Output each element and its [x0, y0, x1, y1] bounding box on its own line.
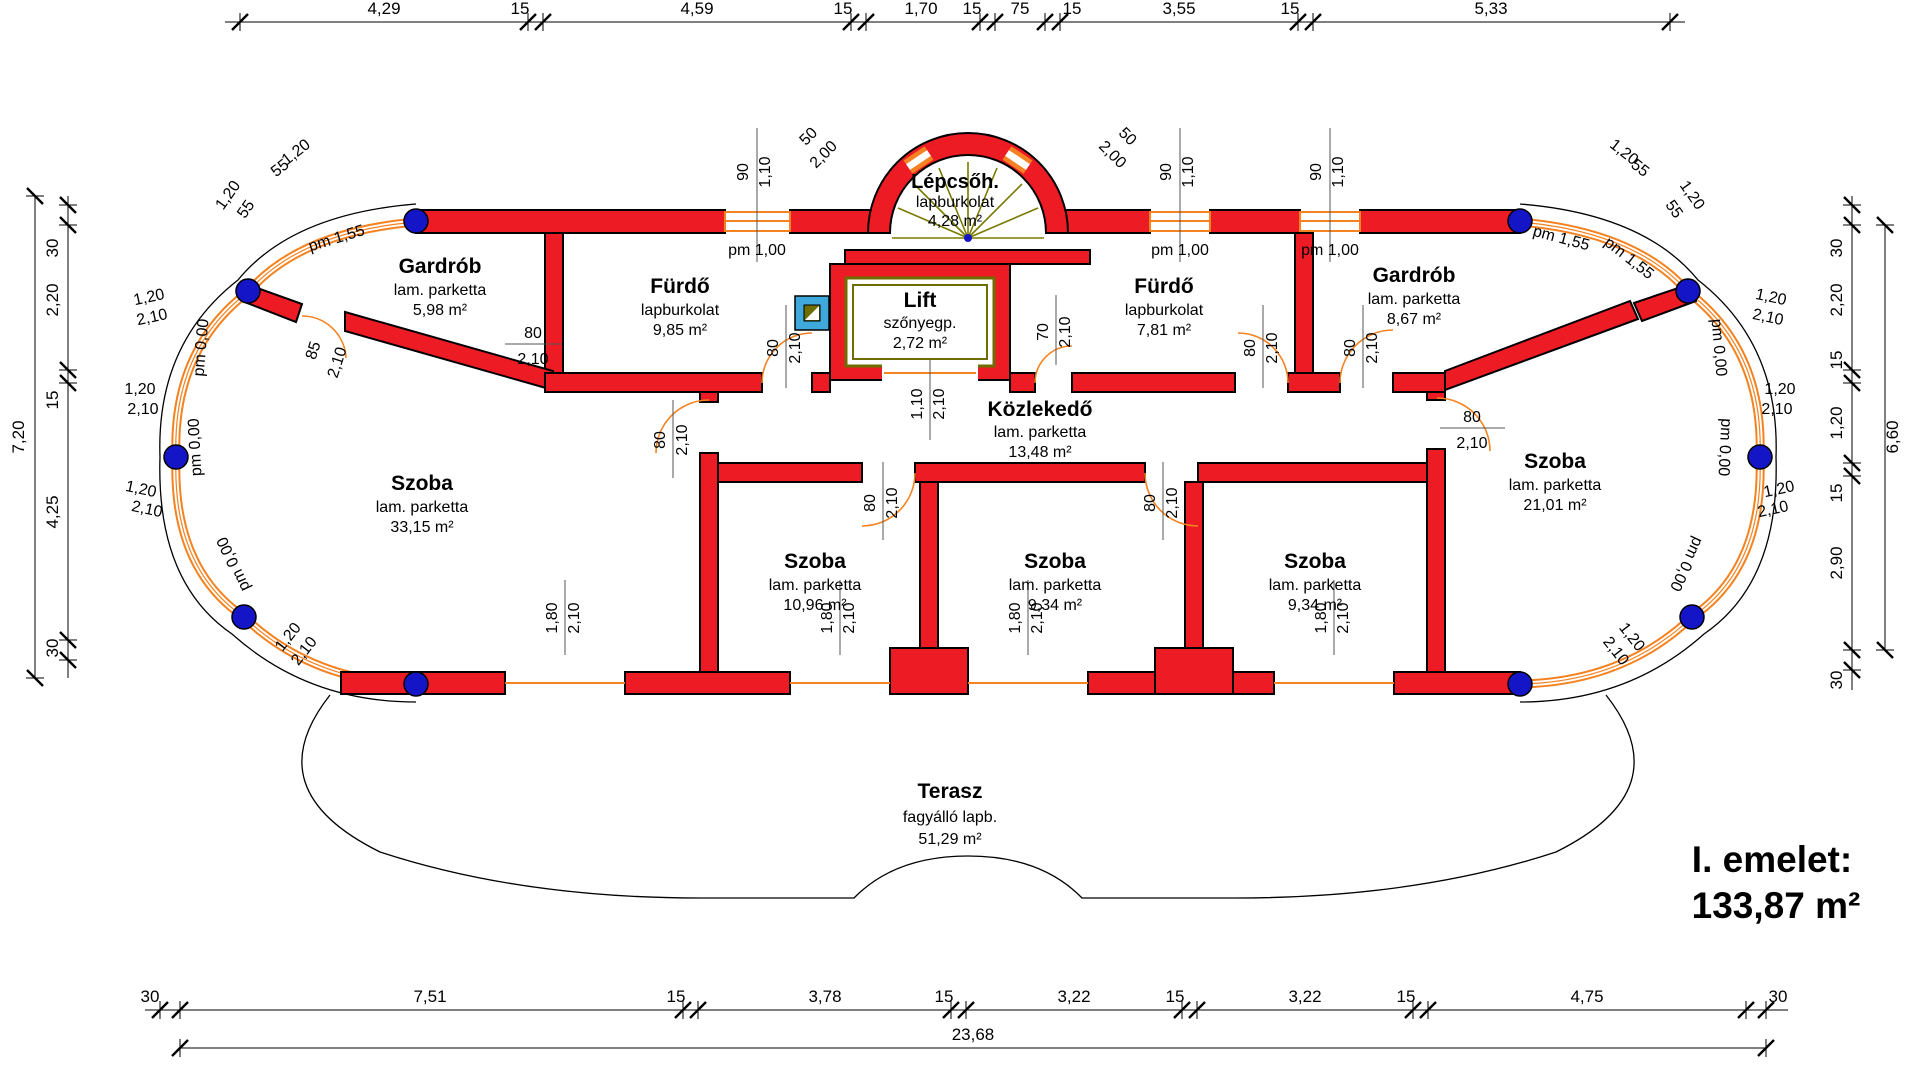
win-sill: pm 1,00: [728, 242, 786, 259]
facade-dim: 1,20: [124, 381, 155, 398]
facade-dim: 2,10: [1751, 306, 1785, 329]
facade-dim: 1,20: [1754, 286, 1788, 309]
dim-bottom-6: 15: [1166, 987, 1185, 1006]
dim-bottom-0: 30: [141, 987, 160, 1006]
terrace-door-dim: 1,80: [544, 602, 561, 633]
room-finish: lam. parketta: [769, 577, 862, 594]
door-dim: 1,10: [909, 388, 926, 419]
room-area: 9,85 m²: [653, 322, 708, 339]
room-finish: lapburkolat: [1125, 302, 1204, 319]
stair-glass-dim: 50: [1115, 125, 1140, 150]
dim-bottom-10: 30: [1769, 987, 1788, 1006]
win-dim: 90: [735, 163, 752, 181]
room-name: Szoba: [391, 472, 453, 495]
sheet-title-line1: I. emelet:: [1692, 839, 1852, 880]
door-dim: 2,10: [1456, 435, 1487, 452]
dim-left-total: 7,20: [9, 420, 28, 453]
door-dim: 2,10: [1164, 487, 1181, 518]
facade-dim: 1,20: [124, 478, 158, 501]
room-kozlekedo: Közlekedő lam. parketta 13,48 m²: [987, 398, 1092, 461]
door-dim: 70: [1035, 323, 1052, 341]
dim-right-0: 30: [1827, 239, 1846, 258]
room-finish: lam. parketta: [1368, 291, 1461, 308]
dim-right-total: 6,60: [1883, 420, 1902, 453]
facade-dim: 2,10: [127, 401, 158, 418]
facade-dim: 55: [234, 197, 258, 221]
door-dim: 85: [303, 339, 325, 361]
dim-right-4: 15: [1827, 484, 1846, 503]
room-finish: lam. parketta: [1009, 577, 1102, 594]
door-dim: 2,10: [1057, 316, 1074, 347]
shaft-symbol: [795, 296, 829, 330]
room-area: 13,48 m²: [1008, 444, 1072, 461]
room-finish: lapburkolat: [916, 194, 995, 211]
dim-bottom-3: 3,78: [808, 987, 841, 1006]
room-furdo-r: Fürdő lapburkolat 7,81 m²: [1125, 275, 1204, 339]
facade-dim: 2,10: [135, 306, 169, 329]
facade-sill: pm 0,00: [1707, 318, 1729, 377]
door-dim: 80: [524, 325, 542, 342]
door-dim: 80: [1342, 339, 1359, 357]
room-gardrob-r: Gardrób lam. parketta 8,67 m²: [1368, 264, 1461, 328]
sheet-title-line2: 133,87 m²: [1692, 885, 1861, 926]
room-name: Szoba: [1284, 550, 1346, 573]
dim-bottom-4: 15: [935, 987, 954, 1006]
room-name: Gardrób: [399, 255, 482, 278]
room-area: 21,01 m²: [1523, 497, 1587, 514]
room-name: Lift: [904, 289, 937, 312]
room-name: Közlekedő: [987, 398, 1092, 421]
dim-bottom-total: 23,68: [952, 1025, 995, 1044]
dim-top-8: 3,55: [1162, 0, 1195, 18]
room-furdo-l: Fürdő lapburkolat 9,85 m²: [641, 275, 720, 339]
room-name: Lépcsőh.: [911, 171, 999, 193]
terrace-door-dim: 1,80: [1313, 602, 1330, 633]
terrace-door-dim: 2,10: [841, 602, 858, 633]
dim-left-4: 30: [43, 639, 62, 658]
win-dim: 90: [1308, 163, 1325, 181]
dim-bottom-9: 4,75: [1570, 987, 1603, 1006]
dim-top-4: 1,70: [904, 0, 937, 18]
terrace-door-dim: 2,10: [1335, 602, 1352, 633]
win-dim: 1,10: [1330, 156, 1347, 187]
room-terasz: Terasz fagyálló lapb. 51,29 m²: [903, 780, 997, 848]
facade-dim: 1,20: [1762, 478, 1796, 501]
dim-left-1: 2,20: [43, 283, 62, 316]
door-dim: 2,10: [884, 487, 901, 518]
dim-right-5: 2,90: [1827, 546, 1846, 579]
room-area: 10,96 m²: [783, 597, 847, 614]
dim-bottom-2: 15: [667, 987, 686, 1006]
facade-sill: pm 0,00: [1714, 418, 1734, 477]
dim-top-6: 75: [1011, 0, 1030, 18]
dim-right-1: 2,20: [1827, 283, 1846, 316]
dim-bottom-8: 15: [1397, 987, 1416, 1006]
room-name: Gardrób: [1373, 264, 1456, 287]
terrace-door-dim: 2,10: [1029, 602, 1046, 633]
room-name: Szoba: [1024, 550, 1086, 573]
dim-top-2: 4,59: [680, 0, 713, 18]
door-dim: 2,10: [325, 345, 351, 380]
door-dim: 2,10: [787, 332, 804, 363]
dim-right-2: 15: [1827, 351, 1846, 370]
floor-plan-page: 4,29 15 4,59 15 1,70 15 75 15 3,55 15 5,…: [0, 0, 1920, 1068]
room-finish: fagyálló lapb.: [903, 809, 997, 826]
room-finish: lam. parketta: [994, 424, 1087, 441]
room-area: 33,15 m²: [390, 519, 454, 536]
dim-bottom-5: 3,22: [1057, 987, 1090, 1006]
room-name: Szoba: [1524, 450, 1586, 473]
dim-top-7: 15: [1063, 0, 1082, 18]
terrace-door-dim: 2,10: [566, 602, 583, 633]
room-name: Terasz: [918, 780, 983, 803]
dim-right-6: 30: [1827, 671, 1846, 690]
terrace-door-dim: 1,80: [1007, 602, 1024, 633]
room-finish: lapburkolat: [641, 302, 720, 319]
door-dim: 2,10: [674, 424, 691, 455]
room-area: 2,72 m²: [893, 335, 948, 352]
win-sill: pm 1,00: [1151, 242, 1209, 259]
room-area: 7,81 m²: [1137, 322, 1192, 339]
facade-sill: pm 0,00: [191, 318, 213, 377]
dimension-lines: [26, 13, 1894, 1057]
terrace-door-dim: 1,80: [819, 602, 836, 633]
door-dim: 80: [1142, 494, 1159, 512]
room-finish: szőnyegp.: [884, 315, 957, 332]
door-dim: 80: [765, 339, 782, 357]
room-name: Fürdő: [650, 275, 709, 298]
room-szoba-r: Szoba lam. parketta 21,01 m²: [1509, 450, 1602, 514]
room-area: 8,67 m²: [1387, 311, 1442, 328]
dim-top-1: 15: [511, 0, 530, 18]
door-dim: 2,10: [1364, 332, 1381, 363]
facade-sill: pm 0,00: [214, 534, 254, 594]
dim-top-0: 4,29: [367, 0, 400, 18]
facade-dim: 2,10: [130, 498, 164, 521]
dim-left-2: 15: [43, 391, 62, 410]
facade-dim: 1,20: [132, 286, 166, 309]
stair-center-dot: [964, 234, 972, 242]
room-name: Fürdő: [1134, 275, 1193, 298]
door-dim: 2,10: [931, 388, 948, 419]
facade-dim: 55: [1662, 197, 1686, 221]
win-dim: 90: [1158, 163, 1175, 181]
dim-top-3: 15: [834, 0, 853, 18]
door-dim: 80: [652, 431, 669, 449]
room-name: Szoba: [784, 550, 846, 573]
facade-dim: 1,20: [1764, 381, 1795, 398]
dim-left-0: 30: [43, 239, 62, 258]
facade-sill: pm 0,00: [1666, 534, 1706, 594]
win-sill: pm 1,00: [1301, 242, 1359, 259]
door-dim: 2,10: [1264, 332, 1281, 363]
door-dim: 80: [1463, 409, 1481, 426]
floor-plan-drawing: 4,29 15 4,59 15 1,70 15 75 15 3,55 15 5,…: [0, 0, 1920, 1068]
dim-top-10: 5,33: [1474, 0, 1507, 18]
door-dim: 2,10: [517, 351, 548, 368]
door-dim: 80: [862, 494, 879, 512]
win-dim: 1,10: [757, 156, 774, 187]
dim-right-3: 1,20: [1827, 406, 1846, 439]
room-finish: lam. parketta: [1269, 577, 1362, 594]
stair-glass-dim: 50: [797, 124, 822, 149]
facade-sill: pm 1,55: [307, 222, 367, 255]
room-finish: lam. parketta: [1509, 477, 1602, 494]
dim-top-5: 15: [963, 0, 982, 18]
dim-top-9: 15: [1281, 0, 1300, 18]
dim-left-3: 4,25: [43, 495, 62, 528]
room-area: 4,28 m²: [928, 213, 983, 230]
room-area: 51,29 m²: [918, 831, 982, 848]
win-dim: 1,10: [1180, 156, 1197, 187]
door-dim: 80: [1242, 339, 1259, 357]
room-finish: lam. parketta: [394, 282, 487, 299]
dim-bottom-7: 3,22: [1288, 987, 1321, 1006]
room-area: 5,98 m²: [413, 302, 468, 319]
room-szoba-l: Szoba lam. parketta 33,15 m²: [376, 472, 469, 536]
facade-sill: pm 0,00: [185, 418, 205, 477]
facade-dim: 2,10: [1761, 401, 1792, 418]
dim-bottom-1: 7,51: [413, 987, 446, 1006]
room-finish: lam. parketta: [376, 499, 469, 516]
room-gardrob-l: Gardrób lam. parketta 5,98 m²: [394, 255, 487, 319]
